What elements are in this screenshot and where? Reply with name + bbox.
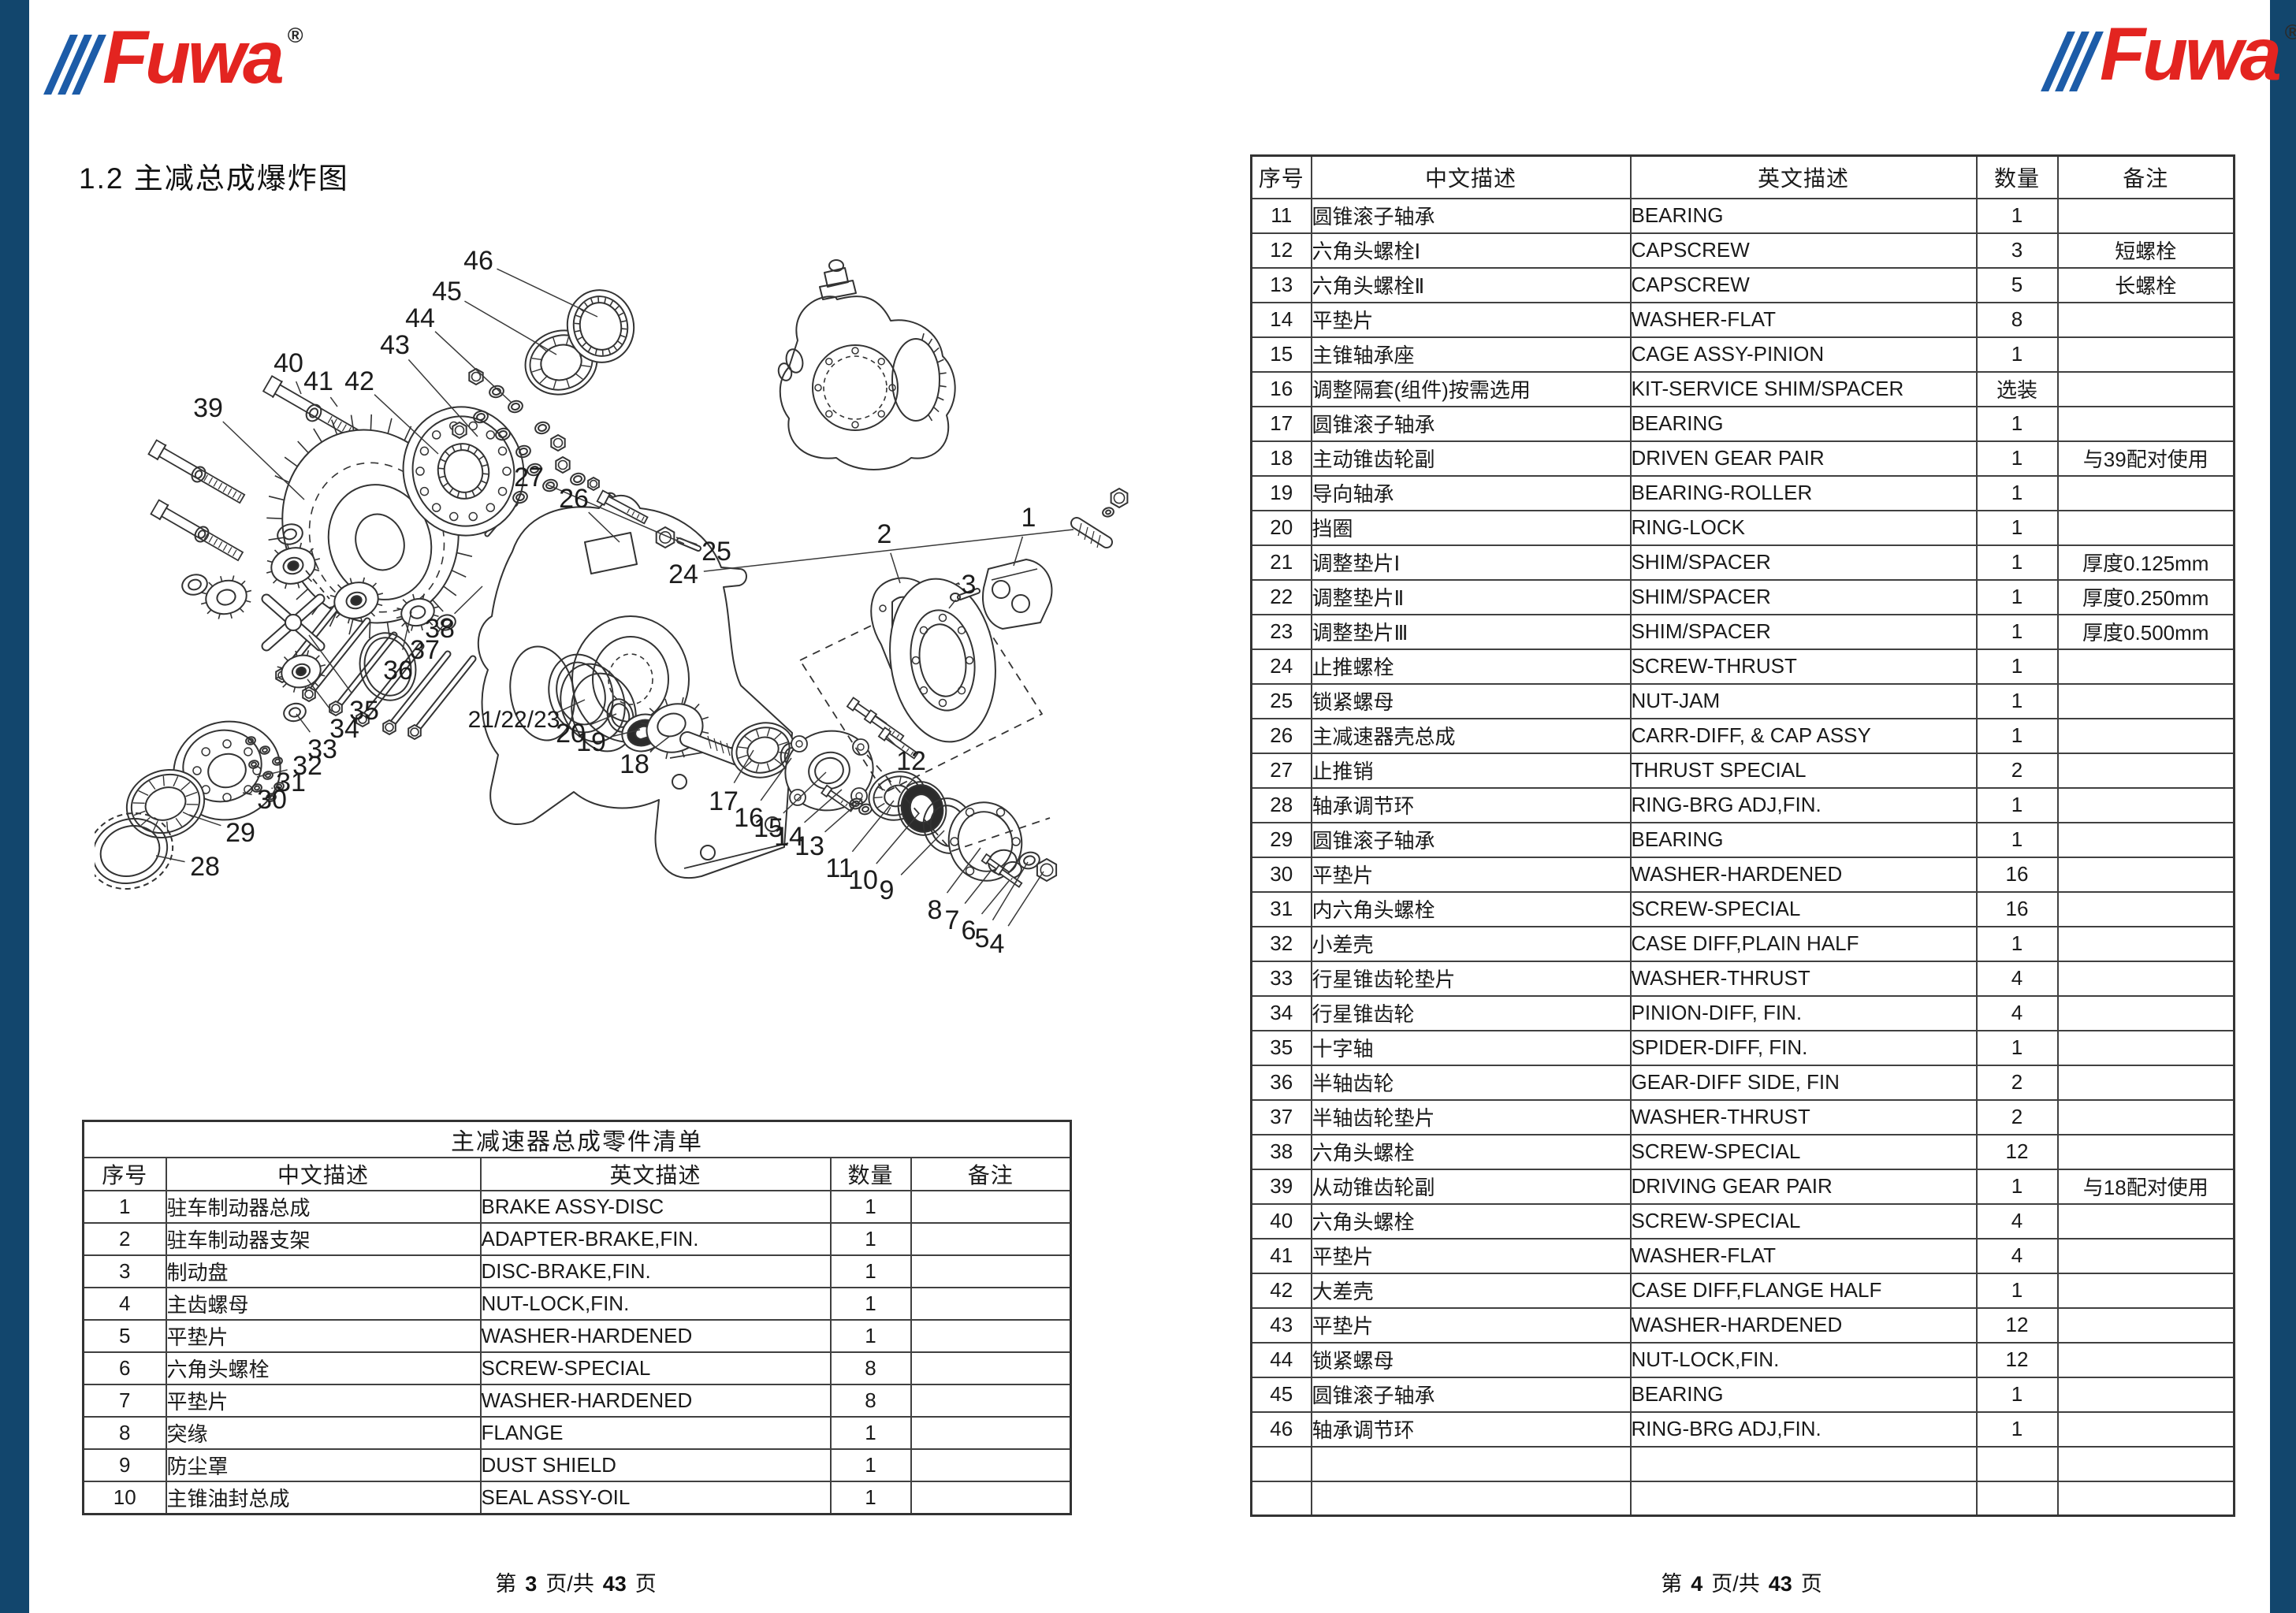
table-cell: 2 (1977, 1065, 2058, 1100)
table-row: 5平垫片WASHER-HARDENED1 (84, 1320, 1071, 1352)
table-cell: 圆锥滚子轴承 (1312, 823, 1631, 857)
table-cell (911, 1417, 1071, 1449)
column-header: 中文描述 (166, 1158, 481, 1191)
table-cell (911, 1255, 1071, 1288)
table-cell: 36 (1252, 1065, 1312, 1100)
table-row: 4主齿螺母NUT-LOCK,FIN.1 (84, 1288, 1071, 1320)
table-row: 6六角头螺栓SCREW-SPECIAL8 (84, 1352, 1071, 1384)
table-row: 16调整隔套(组件)按需选用KIT-SERVICE SHIM/SPACER选装 (1252, 372, 2235, 407)
column-header: 序号 (84, 1158, 166, 1191)
table-row: 45圆锥滚子轴承BEARING1 (1252, 1377, 2235, 1412)
table-cell: 6 (84, 1352, 166, 1384)
parts-table-left: 主减速器总成零件清单序号中文描述英文描述数量备注1驻车制动器总成BRAKE AS… (82, 1120, 1072, 1515)
table-cell (2058, 1447, 2235, 1481)
table-cell: 43 (1252, 1308, 1312, 1343)
column-header: 英文描述 (1631, 156, 1977, 199)
callout-number: 19 (576, 727, 606, 757)
table-row: 25锁紧螺母NUT-JAM1 (1252, 684, 2235, 719)
callout-number: 4 (990, 929, 1005, 959)
table-row: 41平垫片WASHER-FLAT4 (1252, 1239, 2235, 1273)
page-footer-right: 第4页/共43页 (1250, 1567, 2233, 1597)
table-cell: 4 (1977, 961, 2058, 996)
callout-number: 9 (880, 875, 895, 905)
table-cell: 六角头螺栓 (166, 1352, 481, 1384)
table-cell: 1 (1977, 1273, 2058, 1308)
table-cell: 1 (1977, 1377, 2058, 1412)
table-row: 21调整垫片ⅠSHIM/SPACER1厚度0.125mm (1252, 545, 2235, 580)
table-cell (1252, 1447, 1312, 1481)
table-cell: 32 (1252, 927, 1312, 961)
table-cell: 4 (84, 1288, 166, 1320)
table-cell: WASHER-THRUST (1631, 961, 1977, 996)
table-cell: 8 (1977, 303, 2058, 337)
callout-number: 25 (701, 537, 731, 567)
table-cell (2058, 1273, 2235, 1308)
table-cell: BRAKE ASSY-DISC (481, 1191, 831, 1223)
table-row: 46轴承调节环RING-BRG ADJ,FIN.1 (1252, 1412, 2235, 1447)
table-title-row: 主减速器总成零件清单 (84, 1121, 1071, 1158)
table-cell: 1 (831, 1320, 911, 1352)
table-cell: 锁紧螺母 (1312, 684, 1631, 719)
table-cell (911, 1449, 1071, 1481)
table-row: 29圆锥滚子轴承BEARING1 (1252, 823, 2235, 857)
callout-number: 27 (514, 463, 544, 492)
table-cell (2058, 1100, 2235, 1135)
table-cell: 14 (1252, 303, 1312, 337)
column-header: 数量 (1977, 156, 2058, 199)
table-header-row: 序号中文描述英文描述数量备注 (1252, 156, 2235, 199)
column-header: 备注 (2058, 156, 2235, 199)
registered-mark: ® (288, 24, 303, 48)
table-cell: PINION-DIFF, FIN. (1631, 996, 1977, 1031)
table-row: 40六角头螺栓SCREW-SPECIAL4 (1252, 1204, 2235, 1239)
table-cell (911, 1384, 1071, 1417)
table-cell: 12 (1977, 1135, 2058, 1169)
table-cell: 3 (84, 1255, 166, 1288)
callout-number: 3 (962, 570, 977, 600)
table-cell: 圆锥滚子轴承 (1312, 199, 1631, 233)
table-cell: 17 (1252, 407, 1312, 441)
table-cell: 锁紧螺母 (1312, 1343, 1631, 1377)
table-cell: 半轴齿轮 (1312, 1065, 1631, 1100)
table-cell: 1 (1977, 545, 2058, 580)
table-cell: 35 (1252, 1031, 1312, 1065)
table-cell: 12 (1252, 233, 1312, 268)
table-cell: 4 (1977, 1239, 2058, 1273)
table-row: 2驻车制动器支架ADAPTER-BRAKE,FIN.1 (84, 1223, 1071, 1255)
table-cell: 1 (1977, 1031, 2058, 1065)
table-row: 35十字轴SPIDER-DIFF, FIN.1 (1252, 1031, 2235, 1065)
table-cell: 40 (1252, 1204, 1312, 1239)
callout-number: 46 (463, 246, 493, 276)
table-cell: 主齿螺母 (166, 1288, 481, 1320)
table-cell: 突缘 (166, 1417, 481, 1449)
table-cell: 2 (84, 1223, 166, 1255)
callout-number: 37 (410, 635, 440, 665)
table-cell: 厚度0.125mm (2058, 545, 2235, 580)
table-cell (1977, 1481, 2058, 1516)
fuwa-wordmark: Fuwa (102, 24, 281, 91)
fuwa-stripes-icon (2054, 32, 2097, 91)
table-cell: 39 (1252, 1169, 1312, 1204)
table-row: 27止推销THRUST SPECIAL2 (1252, 753, 2235, 788)
fuwa-wordmark: Fuwa (2100, 20, 2279, 88)
table-cell: 1 (831, 1417, 911, 1449)
table-cell: DISC-BRAKE,FIN. (481, 1255, 831, 1288)
table-cell: 8 (831, 1352, 911, 1384)
table-cell: 28 (1252, 788, 1312, 823)
table-cell: 45 (1252, 1377, 1312, 1412)
table-cell: 内六角头螺栓 (1312, 892, 1631, 927)
table-row: 11圆锥滚子轴承BEARING1 (1252, 199, 2235, 233)
callout-number: 26 (559, 484, 589, 514)
table-row: 37半轴齿轮垫片WASHER-THRUST2 (1252, 1100, 2235, 1135)
table-cell: 10 (84, 1481, 166, 1514)
table-cell: CASE DIFF,FLANGE HALF (1631, 1273, 1977, 1308)
table-cell: 7 (84, 1384, 166, 1417)
callout-number: 21/22/23 (468, 707, 560, 733)
table-row: 26主减速器壳总成CARR-DIFF, & CAP ASSY1 (1252, 719, 2235, 753)
table-cell: WASHER-THRUST (1631, 1100, 1977, 1135)
table-cell (2058, 476, 2235, 511)
table-cell: 行星锥齿轮 (1312, 996, 1631, 1031)
table-cell: 25 (1252, 684, 1312, 719)
table-cell (2058, 1204, 2235, 1239)
table-cell: 41 (1252, 1239, 1312, 1273)
column-header: 序号 (1252, 156, 1312, 199)
callout-number: 5 (975, 924, 990, 953)
table-cell: 34 (1252, 996, 1312, 1031)
table-cell: WASHER-FLAT (1631, 1239, 1977, 1273)
table-cell: 轴承调节环 (1312, 788, 1631, 823)
table-cell: 调整垫片Ⅰ (1312, 545, 1631, 580)
table-cell: DRIVING GEAR PAIR (1631, 1169, 1977, 1204)
table-cell (2058, 1308, 2235, 1343)
table-cell: CAGE ASSY-PINION (1631, 337, 1977, 372)
table-cell: 44 (1252, 1343, 1312, 1377)
table-cell: 4 (1977, 996, 2058, 1031)
table-row: 7平垫片WASHER-HARDENED8 (84, 1384, 1071, 1417)
table-cell: SHIM/SPACER (1631, 580, 1977, 615)
table-cell (1631, 1447, 1977, 1481)
table-cell: WASHER-HARDENED (481, 1384, 831, 1417)
page-footer-left: 第3页/共43页 (82, 1567, 1070, 1597)
table-row-empty (1252, 1481, 2235, 1516)
table-cell: 行星锥齿轮垫片 (1312, 961, 1631, 996)
table-row: 44锁紧螺母NUT-LOCK,FIN.12 (1252, 1343, 2235, 1377)
table-cell: 1 (1977, 788, 2058, 823)
table-cell: DUST SHIELD (481, 1449, 831, 1481)
table-cell: FLANGE (481, 1417, 831, 1449)
table-cell (1977, 1447, 2058, 1481)
table-cell: 20 (1252, 511, 1312, 545)
callout-number: 28 (190, 852, 220, 882)
table-cell (911, 1191, 1071, 1223)
table-cell: NUT-LOCK,FIN. (1631, 1343, 1977, 1377)
table-cell: 1 (1977, 719, 2058, 753)
table-cell (2058, 1031, 2235, 1065)
table-row: 33行星锥齿轮垫片WASHER-THRUST4 (1252, 961, 2235, 996)
table-cell: 9 (84, 1449, 166, 1481)
table-cell (2058, 788, 2235, 823)
table-cell: SEAL ASSY-OIL (481, 1481, 831, 1514)
callout-number: 45 (432, 277, 462, 307)
table-row: 8突缘FLANGE1 (84, 1417, 1071, 1449)
table-cell (2058, 649, 2235, 684)
registered-mark: ® (2285, 20, 2296, 45)
table-cell: 主减速器壳总成 (1312, 719, 1631, 753)
table-cell: 19 (1252, 476, 1312, 511)
table-cell: 1 (1977, 1169, 2058, 1204)
table-cell (2058, 1481, 2235, 1516)
table-cell: RING-BRG ADJ,FIN. (1631, 1412, 1977, 1447)
table-cell: SCREW-SPECIAL (1631, 892, 1977, 927)
table-row: 19导向轴承BEARING-ROLLER1 (1252, 476, 2235, 511)
page-border-left (0, 0, 29, 1613)
table-cell (911, 1320, 1071, 1352)
column-header: 中文描述 (1312, 156, 1631, 199)
table-cell: RING-BRG ADJ,FIN. (1631, 788, 1977, 823)
table-row: 10主锥油封总成SEAL ASSY-OIL1 (84, 1481, 1071, 1514)
table-cell: 主锥油封总成 (166, 1481, 481, 1514)
callout-number: 1 (1021, 503, 1036, 533)
table-cell (2058, 1239, 2235, 1273)
table-cell: 驻车制动器总成 (166, 1191, 481, 1223)
table-cell: 六角头螺栓Ⅱ (1312, 268, 1631, 303)
page-border-right (2270, 0, 2296, 1613)
table-row: 23调整垫片ⅢSHIM/SPACER1厚度0.500mm (1252, 615, 2235, 649)
callout-number: 39 (193, 393, 223, 423)
table-cell: 挡圈 (1312, 511, 1631, 545)
manual-spread: Fuwa ® Fuwa ® 1.2 主减总成爆炸图 46454443404142… (0, 0, 2296, 1613)
table-cell: 平垫片 (1312, 303, 1631, 337)
callout-number: 40 (274, 348, 303, 378)
callout-number: 29 (225, 818, 255, 848)
table-cell: 42 (1252, 1273, 1312, 1308)
table-cell: NUT-LOCK,FIN. (481, 1288, 831, 1320)
table-cell: 选装 (1977, 372, 2058, 407)
table-cell: BEARING (1631, 199, 1977, 233)
table-cell: 16 (1977, 892, 2058, 927)
table-cell: CARR-DIFF, & CAP ASSY (1631, 719, 1977, 753)
table-cell: 12 (1977, 1308, 2058, 1343)
table-cell: 11 (1252, 199, 1312, 233)
table-cell: ADAPTER-BRAKE,FIN. (481, 1223, 831, 1255)
table-cell (2058, 511, 2235, 545)
table-cell: 8 (831, 1384, 911, 1417)
table-cell: 38 (1252, 1135, 1312, 1169)
table-cell: 止推螺栓 (1312, 649, 1631, 684)
table-cell (2058, 407, 2235, 441)
table-cell: 12 (1977, 1343, 2058, 1377)
table-cell: 15 (1252, 337, 1312, 372)
table-row: 39从动锥齿轮副DRIVING GEAR PAIR1与18配对使用 (1252, 1169, 2235, 1204)
table-cell: 半轴齿轮垫片 (1312, 1100, 1631, 1135)
callout-number: 13 (794, 831, 824, 861)
table-cell (2058, 823, 2235, 857)
table-cell: CAPSCREW (1631, 268, 1977, 303)
table-cell: 长螺栓 (2058, 268, 2235, 303)
table-cell: 21 (1252, 545, 1312, 580)
table-cell: 调整隔套(组件)按需选用 (1312, 372, 1631, 407)
table-cell: 29 (1252, 823, 1312, 857)
table-cell: 平垫片 (166, 1320, 481, 1352)
table-cell: 大差壳 (1312, 1273, 1631, 1308)
table-cell: 主动锥齿轮副 (1312, 441, 1631, 476)
table-cell: 23 (1252, 615, 1312, 649)
table-cell: 1 (831, 1191, 911, 1223)
table-row: 9防尘罩DUST SHIELD1 (84, 1449, 1071, 1481)
table-cell: 圆锥滚子轴承 (1312, 1377, 1631, 1412)
table-row: 32小差壳CASE DIFF,PLAIN HALF1 (1252, 927, 2235, 961)
table-row: 22调整垫片ⅡSHIM/SPACER1厚度0.250mm (1252, 580, 2235, 615)
table-row-empty (1252, 1447, 2235, 1481)
table-cell: 1 (831, 1449, 911, 1481)
table-cell: 防尘罩 (166, 1449, 481, 1481)
table-cell: 1 (1977, 511, 2058, 545)
table-cell (2058, 892, 2235, 927)
assembled-view-inset (776, 260, 954, 470)
table-cell: RING-LOCK (1631, 511, 1977, 545)
table-cell: KIT-SERVICE SHIM/SPACER (1631, 372, 1977, 407)
table-cell: 1 (84, 1191, 166, 1223)
callout-number: 18 (620, 749, 649, 779)
callout-number: 44 (405, 303, 435, 333)
table-cell: SCREW-SPECIAL (1631, 1135, 1977, 1169)
callout-number: 42 (344, 366, 374, 396)
table-cell: 1 (1977, 615, 2058, 649)
table-cell: SCREW-SPECIAL (1631, 1204, 1977, 1239)
table-cell: 2 (1977, 1100, 2058, 1135)
table-row: 28轴承调节环RING-BRG ADJ,FIN.1 (1252, 788, 2235, 823)
table-cell: NUT-JAM (1631, 684, 1977, 719)
pinion-bearing-upper (517, 284, 641, 403)
table-cell (1312, 1481, 1631, 1516)
table-cell: 1 (831, 1255, 911, 1288)
table-cell: 37 (1252, 1100, 1312, 1135)
exploded-diagram: 4645444340414239272625242133837363534333… (95, 213, 1167, 1009)
table-cell: 1 (1977, 823, 2058, 857)
table-cell: 主锥轴承座 (1312, 337, 1631, 372)
table-cell (2058, 719, 2235, 753)
table-cell: WASHER-FLAT (1631, 303, 1977, 337)
table-cell: BEARING-ROLLER (1631, 476, 1977, 511)
table-cell: 16 (1977, 857, 2058, 892)
table-cell: 5 (84, 1320, 166, 1352)
table-row: 30平垫片WASHER-HARDENED16 (1252, 857, 2235, 892)
table-cell (2058, 961, 2235, 996)
table-cell: 调整垫片Ⅲ (1312, 615, 1631, 649)
table-cell (2058, 337, 2235, 372)
table-cell (2058, 927, 2235, 961)
table-cell (2058, 1065, 2235, 1100)
table-cell: BEARING (1631, 407, 1977, 441)
table-cell: 厚度0.250mm (2058, 580, 2235, 615)
table-cell: GEAR-DIFF SIDE, FIN (1631, 1065, 1977, 1100)
table-cell: 1 (1977, 684, 2058, 719)
table-cell: 1 (831, 1223, 911, 1255)
callout-number: 30 (257, 785, 287, 815)
table-cell: 4 (1977, 1204, 2058, 1239)
table-cell: 调整垫片Ⅱ (1312, 580, 1631, 615)
table-cell (911, 1288, 1071, 1320)
fuwa-stripes-icon (57, 35, 99, 95)
table-cell: 8 (84, 1417, 166, 1449)
table-row: 3制动盘DISC-BRAKE,FIN.1 (84, 1255, 1071, 1288)
table-cell: 3 (1977, 233, 2058, 268)
table-cell: BEARING (1631, 1377, 1977, 1412)
table-cell: 33 (1252, 961, 1312, 996)
table-cell: 1 (1977, 476, 2058, 511)
table-cell (2058, 372, 2235, 407)
table-cell: 16 (1252, 372, 1312, 407)
table-cell: 1 (831, 1288, 911, 1320)
table-cell (2058, 1377, 2235, 1412)
table-cell (2058, 753, 2235, 788)
table-cell: 31 (1252, 892, 1312, 927)
table-cell (2058, 857, 2235, 892)
table-row: 43平垫片WASHER-HARDENED12 (1252, 1308, 2235, 1343)
callout-number: 7 (945, 905, 960, 935)
table-cell: 制动盘 (166, 1255, 481, 1288)
table-cell: 24 (1252, 649, 1312, 684)
table-cell (2058, 1343, 2235, 1377)
table-cell: 1 (1977, 337, 2058, 372)
table-cell: SCREW-SPECIAL (481, 1352, 831, 1384)
table-cell: 十字轴 (1312, 1031, 1631, 1065)
table-cell: THRUST SPECIAL (1631, 753, 1977, 788)
table-cell: SPIDER-DIFF, FIN. (1631, 1031, 1977, 1065)
table-cell (2058, 684, 2235, 719)
table-cell: 27 (1252, 753, 1312, 788)
table-cell: 26 (1252, 719, 1312, 753)
table-title: 主减速器总成零件清单 (84, 1121, 1071, 1158)
table-row: 42大差壳CASE DIFF,FLANGE HALF1 (1252, 1273, 2235, 1308)
callout-number: 10 (848, 865, 878, 895)
table-cell: 小差壳 (1312, 927, 1631, 961)
column-header: 英文描述 (481, 1158, 831, 1191)
table-cell: 46 (1252, 1412, 1312, 1447)
table-cell (2058, 996, 2235, 1031)
column-header: 数量 (831, 1158, 911, 1191)
table-cell: 与18配对使用 (2058, 1169, 2235, 1204)
table-cell: 1 (1977, 1412, 2058, 1447)
table-cell: 1 (1977, 927, 2058, 961)
column-header: 备注 (911, 1158, 1071, 1191)
table-row: 34行星锥齿轮PINION-DIFF, FIN.4 (1252, 996, 2235, 1031)
table-cell: 平垫片 (166, 1384, 481, 1417)
table-row: 14平垫片WASHER-FLAT8 (1252, 303, 2235, 337)
table-row: 1驻车制动器总成BRAKE ASSY-DISC1 (84, 1191, 1071, 1223)
table-row: 18主动锥齿轮副DRIVEN GEAR PAIR1与39配对使用 (1252, 441, 2235, 476)
table-cell: BEARING (1631, 823, 1977, 857)
table-cell (2058, 1412, 2235, 1447)
table-cell: 平垫片 (1312, 1308, 1631, 1343)
table-cell (911, 1223, 1071, 1255)
table-cell: 从动锥齿轮副 (1312, 1169, 1631, 1204)
table-cell: 与39配对使用 (2058, 441, 2235, 476)
table-cell: 止推销 (1312, 753, 1631, 788)
callout-number: 41 (303, 366, 333, 396)
callout-number: 2 (877, 519, 892, 549)
table-cell (1631, 1481, 1977, 1516)
table-cell: 短螺栓 (2058, 233, 2235, 268)
callout-number: 12 (896, 746, 926, 776)
table-cell: 22 (1252, 580, 1312, 615)
table-cell (2058, 199, 2235, 233)
table-cell: 1 (1977, 199, 2058, 233)
callout-number: 8 (928, 895, 943, 925)
